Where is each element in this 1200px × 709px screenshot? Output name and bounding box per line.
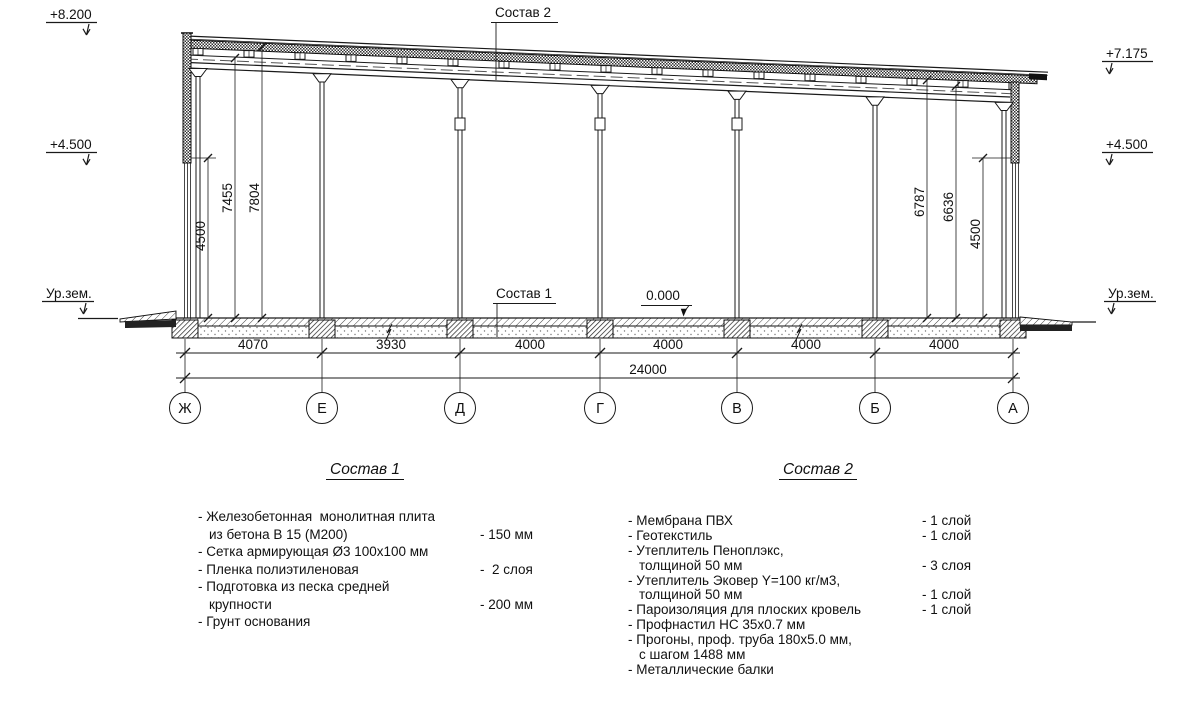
column-splice	[455, 118, 465, 130]
column-splice	[732, 118, 742, 130]
footing	[587, 320, 613, 338]
foundation-slab	[78, 311, 1096, 340]
level-arrow-icon	[1106, 154, 1113, 165]
level-arrow-icon	[83, 24, 90, 35]
spec-row: - Подготовка из песка средней	[198, 578, 598, 596]
columns	[313, 74, 884, 318]
spec-row: крупности- 200 мм	[198, 596, 598, 614]
spec-row: - Утеплитель Эковер Y=100 кг/м3,	[628, 574, 1048, 589]
callout-roof-composition: Состав 2	[495, 5, 551, 20]
callout-floor-composition: Состав 1	[496, 286, 552, 301]
section-drawing-sheet: 4070 3930 4000 4000 4000 4000 24000 Ж Е …	[0, 0, 1200, 709]
span-dim: 4070	[238, 337, 268, 352]
total-dim: 24000	[629, 362, 667, 377]
spec-row: - Утеплитель Пеноплэкс,	[628, 544, 1048, 559]
vdim: 4500	[193, 221, 208, 251]
vdim: 4500	[968, 219, 983, 249]
spec-row: - Мембрана ПВХ- 1 слой	[628, 514, 1048, 529]
spec-row: толщиной 50 мм- 3 слоя	[628, 559, 1048, 574]
spec-row: - Профнастил НС 35x0.7 мм	[628, 618, 1048, 633]
level-8200: +8.200	[50, 7, 92, 22]
spec-row: - Сетка армирующая Ø3 100x100 мм	[198, 543, 598, 561]
vdim: 6636	[941, 192, 956, 222]
spec-row: - Железобетонная монолитная плита	[198, 508, 598, 526]
axis-bubbles: Ж Е Д Г В Б А	[170, 393, 1029, 424]
ground-level-right: Ур.зем.	[1108, 286, 1154, 301]
spec-row: - Прогоны, проф. труба 180x5.0 мм,	[628, 633, 1048, 648]
footing	[724, 320, 750, 338]
bottom-dimensions: 4070 3930 4000 4000 4000 4000 24000	[176, 337, 1020, 393]
spec-row: - Грунт основания	[198, 613, 598, 631]
level-arrow-icon	[1106, 63, 1113, 74]
vertical-dimensions-left: 4500 7455 7804	[191, 43, 266, 322]
spec2-title: Состав 2	[628, 461, 1008, 479]
vdim: 6787	[912, 187, 927, 217]
right-apron	[1020, 317, 1072, 325]
datum-zero: 0.000	[646, 288, 680, 303]
level-arrow-icon	[83, 154, 90, 165]
spec-row: толщиной 50 мм- 1 слой	[628, 588, 1048, 603]
roof-end-cap	[1029, 73, 1047, 80]
spec-row: из бетона В 15 (М200)- 150 мм	[198, 526, 598, 544]
axis-label: Д	[455, 401, 465, 417]
level-arrow-icon	[80, 303, 87, 314]
left-wall	[181, 33, 207, 318]
span-dim: 4000	[929, 337, 959, 352]
span-dim: 4000	[791, 337, 821, 352]
footing	[309, 320, 335, 338]
spec1-title: Состав 1	[200, 461, 530, 479]
span-dim: 3930	[376, 337, 406, 352]
axis-label: Е	[317, 401, 327, 417]
spec-row: - Пленка полиэтиленовая- 2 слоя	[198, 561, 598, 579]
right-apron-base	[1020, 325, 1072, 331]
datum-arrow-icon	[681, 309, 687, 317]
column-capital	[995, 102, 1013, 110]
vertical-dimensions-right: 6787 6636 4500	[912, 76, 1011, 322]
spec-row: - Пароизоляция для плоских кровель- 1 сл…	[628, 603, 1048, 618]
axis-label: Ж	[178, 401, 192, 417]
axis-label: Г	[596, 401, 604, 417]
column-splice	[595, 118, 605, 130]
axis-label: А	[1008, 401, 1018, 417]
level-arrow-icon	[1108, 303, 1115, 314]
spec2-list: - Мембрана ПВХ- 1 слой - Геотекстиль- 1 …	[628, 514, 1048, 678]
spec-row: - Металлические балки	[628, 663, 1048, 678]
vdim: 7804	[247, 182, 262, 213]
right-wall	[995, 82, 1019, 318]
axis-label: Б	[870, 401, 880, 417]
level-4500-left: +4.500	[50, 137, 92, 152]
footing	[862, 320, 888, 338]
vdim: 7455	[220, 183, 235, 213]
axis-label: В	[732, 401, 742, 417]
level-4500-right: +4.500	[1106, 137, 1148, 152]
left-apron-base	[125, 320, 176, 328]
roof-assembly	[186, 36, 1048, 103]
ground-level-left: Ур.зем.	[46, 286, 92, 301]
left-wall-panel	[183, 33, 191, 163]
section-drawing: 4070 3930 4000 4000 4000 4000 24000 Ж Е …	[0, 0, 1200, 445]
span-dim: 4000	[653, 337, 683, 352]
span-dim: 4000	[515, 337, 545, 352]
footing	[447, 320, 473, 338]
spec1-list: - Железобетонная монолитная плита из бет…	[198, 508, 598, 631]
spec-row: - Геотекстиль- 1 слой	[628, 529, 1048, 544]
spec-row: с шагом 1488 мм	[628, 648, 1048, 663]
right-wall-panel	[1011, 82, 1019, 163]
column-capital	[189, 69, 207, 77]
level-7175: +7.175	[1106, 46, 1148, 61]
